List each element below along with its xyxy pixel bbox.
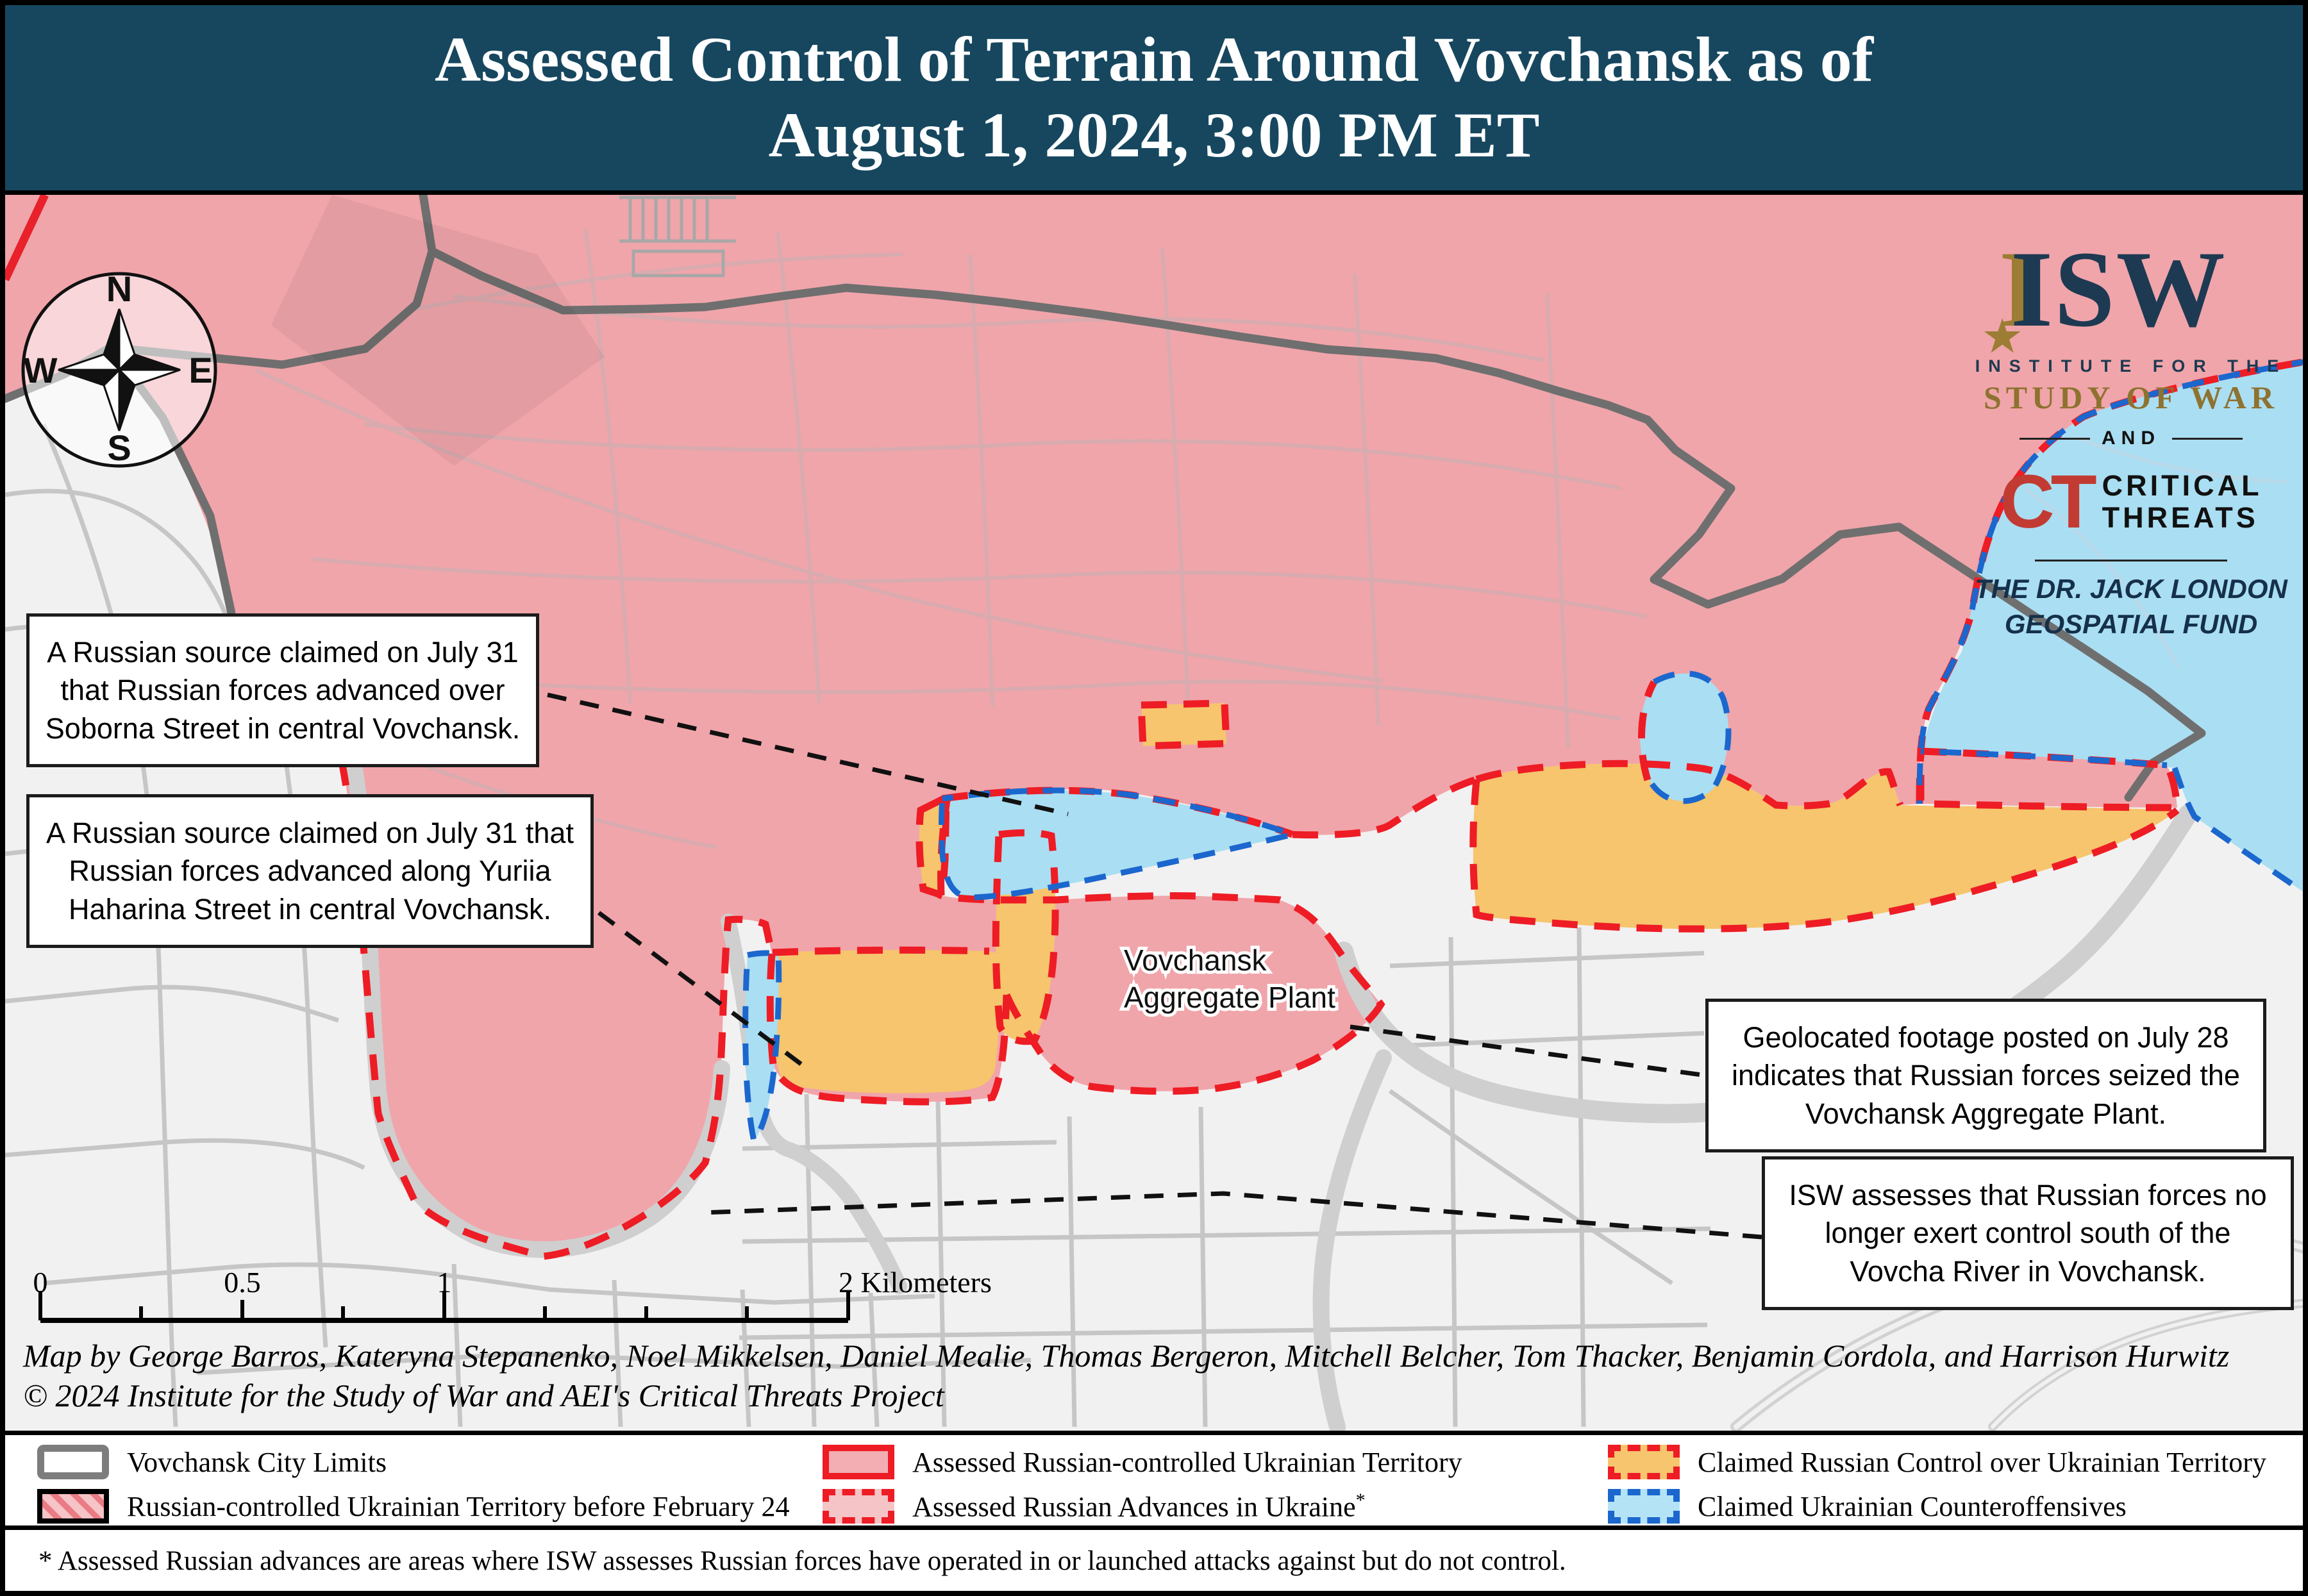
assessed-control-label: Assessed Russian-controlled Ukrainian Te… [912, 1446, 1462, 1479]
legend-item-assessed-advances: Assessed Russian Advances in Ukraine* [823, 1485, 1462, 1527]
legend-item-assessed-control: Assessed Russian-controlled Ukrainian Te… [823, 1441, 1462, 1483]
credits-line2: © 2024 Institute for the Study of War an… [23, 1377, 945, 1413]
legend-column-2: Assessed Russian-controlled Ukrainian Te… [823, 1439, 1462, 1527]
city-limits-swatch [37, 1445, 109, 1479]
assessed-advances-swatch [823, 1489, 894, 1524]
claimed-russian-label: Claimed Russian Control over Ukrainian T… [1698, 1446, 2266, 1479]
assessed-control-swatch [823, 1445, 894, 1479]
advances-asterisk: * [1356, 1490, 1366, 1511]
isw-logo: I ISW ★ INSTITUTE FOR THE STUDY OF WAR A… [1955, 227, 2303, 642]
assessed-advances-label: Assessed Russian Advances in Ukraine* [912, 1490, 1366, 1524]
legend: Vovchansk City Limits Russian-controlled… [5, 1431, 2303, 1525]
credits-line1: Map by George Barros, Kateryna Stepanenk… [22, 1338, 2229, 1374]
threats-line2: THREATS [2102, 501, 2259, 534]
isw-text: ISW [2011, 227, 2227, 352]
isw-wordmark: I ISW ★ [1955, 227, 2303, 349]
divider-rule-right [2172, 438, 2243, 440]
legend-column-3: Claimed Russian Control over Ukrainian T… [1608, 1439, 2266, 1527]
compass-s-label: S [107, 428, 131, 468]
isw-study-of-war-label: STUDY OF WAR [1955, 379, 2303, 416]
assessed-advances-text: Assessed Russian Advances in Ukraine [912, 1491, 1356, 1522]
divider-rule-left [2019, 438, 2090, 440]
compass-e-label: E [188, 350, 212, 390]
pre-feb24-label: Russian-controlled Ukrainian Territory b… [127, 1490, 789, 1523]
annotation-box-1: A Russian source claimed on July 31 that… [26, 613, 539, 767]
legend-item-claimed-russian: Claimed Russian Control over Ukrainian T… [1608, 1441, 2266, 1483]
footnote: * Assessed Russian advances are areas wh… [5, 1525, 2303, 1591]
plant-label-line1: Vovchansk [1124, 943, 1267, 977]
page-title-line2: August 1, 2024, 3:00 PM ET [5, 97, 2303, 173]
legend-item-pre-feb24: Russian-controlled Ukrainian Territory b… [37, 1485, 789, 1527]
compass-n-label: N [106, 269, 132, 309]
fund-divider-rule [2035, 560, 2227, 561]
header-bar: Assessed Control of Terrain Around Vovch… [5, 5, 2303, 195]
footnote-text: * Assessed Russian advances are areas wh… [38, 1546, 1566, 1576]
scale-label-05: 0.5 [224, 1266, 261, 1299]
critical-threats-label: CRITICALTHREATS [2102, 470, 2262, 535]
legend-column-1: Vovchansk City Limits Russian-controlled… [37, 1439, 789, 1527]
critical-threats-logo: CT CRITICALTHREATS [1955, 458, 2303, 545]
and-label: AND [2102, 428, 2161, 449]
page-title-line1: Assessed Control of Terrain Around Vovch… [5, 22, 2303, 97]
annotation-box-2: A Russian source claimed on July 31 that… [26, 794, 594, 948]
fund-line2: GEOSPATIAL FUND [2005, 609, 2257, 639]
scale-label-2: 2 Kilometers [839, 1266, 992, 1299]
compass-w-label: W [24, 350, 58, 390]
claimed-ukrainian-swatch [1608, 1489, 1680, 1524]
claimed-russian-area-central [770, 950, 999, 1093]
claimed-russian-small-north [1141, 703, 1226, 746]
legend-item-city-limits: Vovchansk City Limits [37, 1441, 789, 1483]
city-limits-label: Vovchansk City Limits [127, 1446, 387, 1479]
ct-monogram: CT [2000, 458, 2093, 545]
fund-line1: THE DR. JACK LONDON [1975, 574, 2287, 604]
annotation-box-4: ISW assesses that Russian forces no long… [1762, 1156, 2294, 1310]
map-poster: Assessed Control of Terrain Around Vovch… [0, 0, 2308, 1596]
map-canvas: Vovchansk Aggregate Plant N E S W [5, 195, 2303, 1431]
claimed-russian-swatch [1608, 1445, 1680, 1479]
star-icon: ★ [1981, 309, 2023, 365]
legend-item-claimed-ukrainian: Claimed Ukrainian Counteroffensives [1608, 1485, 2266, 1527]
pre-feb24-swatch [37, 1489, 109, 1524]
logo-and-divider: AND [1955, 428, 2303, 449]
plant-label-line2: Aggregate Plant [1124, 981, 1335, 1014]
geospatial-fund-label: THE DR. JACK LONDONGEOSPATIAL FUND [1955, 572, 2303, 642]
annotation-box-3: Geolocated footage posted on July 28 ind… [1705, 999, 2266, 1152]
claimed-ukrainian-label: Claimed Ukrainian Counteroffensives [1698, 1490, 2127, 1523]
critical-line1: CRITICAL [2102, 469, 2262, 502]
